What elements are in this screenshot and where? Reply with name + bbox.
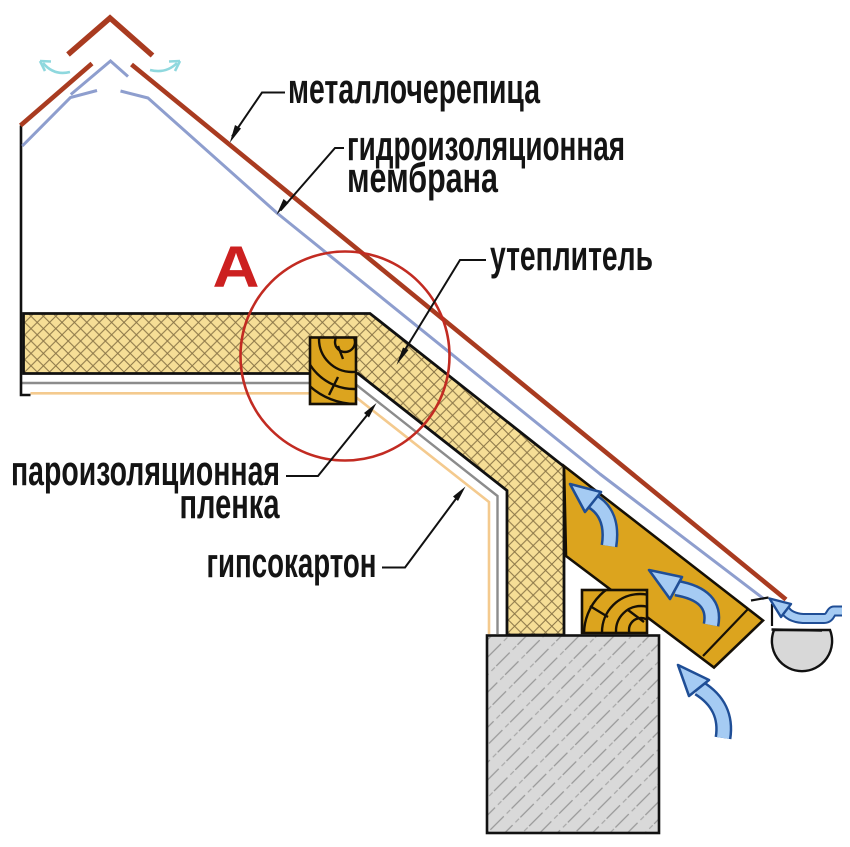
svg-text:пленка: пленка xyxy=(180,480,280,527)
svg-text:мембрана: мембрана xyxy=(347,154,498,201)
svg-text:гипсокартон: гипсокартон xyxy=(207,539,377,586)
svg-text:А: А xyxy=(213,235,260,300)
svg-text:утеплитель: утеплитель xyxy=(490,232,653,279)
svg-text:металлочерепица: металлочерепица xyxy=(288,65,540,112)
